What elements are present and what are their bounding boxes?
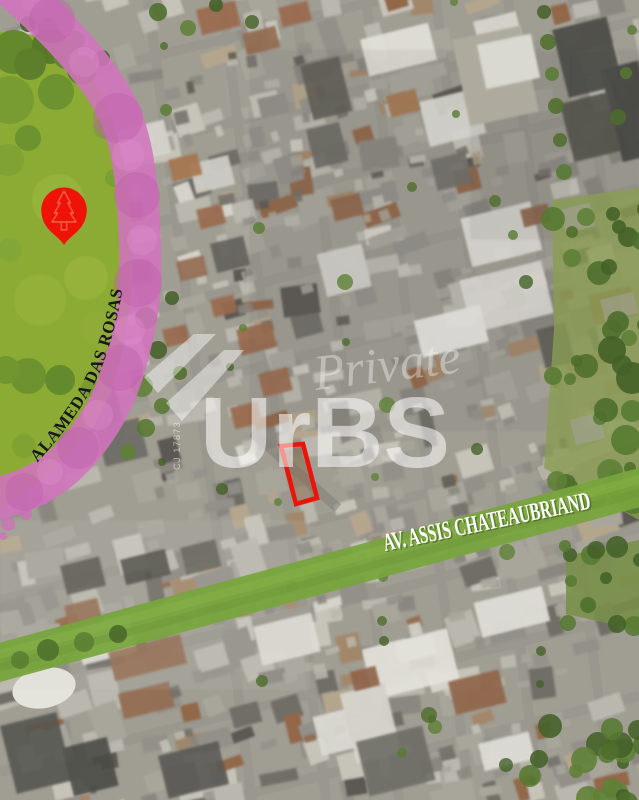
svg-text:CJ 17873: CJ 17873: [172, 421, 183, 470]
